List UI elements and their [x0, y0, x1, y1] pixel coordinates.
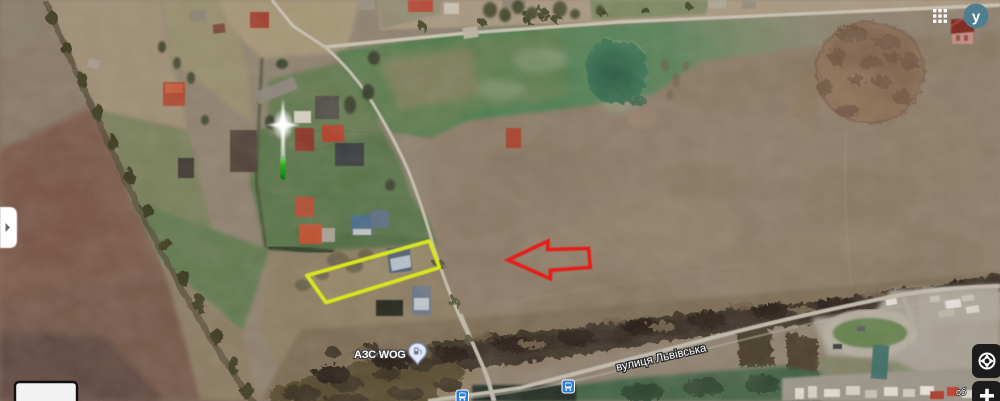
svg-text:об: об — [956, 387, 966, 397]
svg-text:у: у — [972, 9, 981, 26]
svg-text:АЗС WOG: АЗС WOG — [354, 349, 406, 361]
